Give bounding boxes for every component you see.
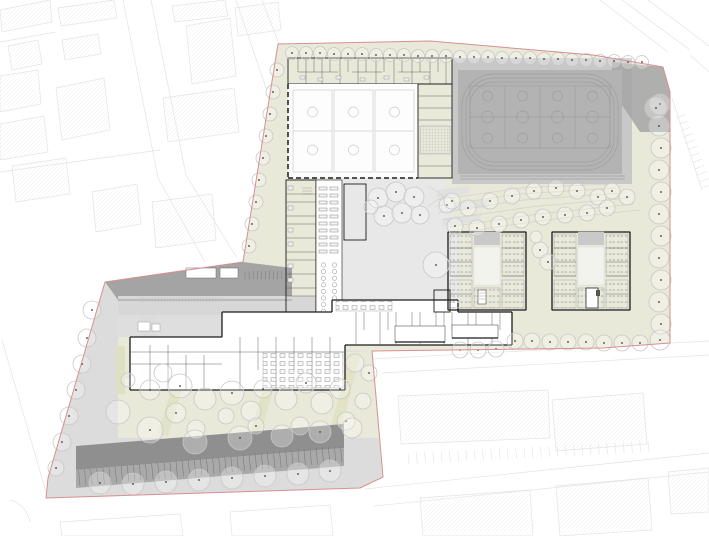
cluster-courtyard	[474, 247, 500, 285]
site-plan-drawing	[0, 0, 709, 536]
kiosk	[220, 268, 238, 278]
equipment-room	[420, 126, 450, 154]
cluster-courtyard	[578, 247, 604, 285]
roof-band-low	[118, 315, 222, 337]
south-canopy	[452, 325, 498, 338]
dining-tables	[336, 301, 392, 311]
site-plan-canvas	[0, 0, 709, 536]
trees-corner	[645, 97, 667, 119]
classroom-cluster-a	[434, 232, 526, 312]
classroom-cluster-b	[552, 232, 630, 310]
south-canopy	[395, 326, 445, 342]
planter-strip	[116, 346, 125, 394]
